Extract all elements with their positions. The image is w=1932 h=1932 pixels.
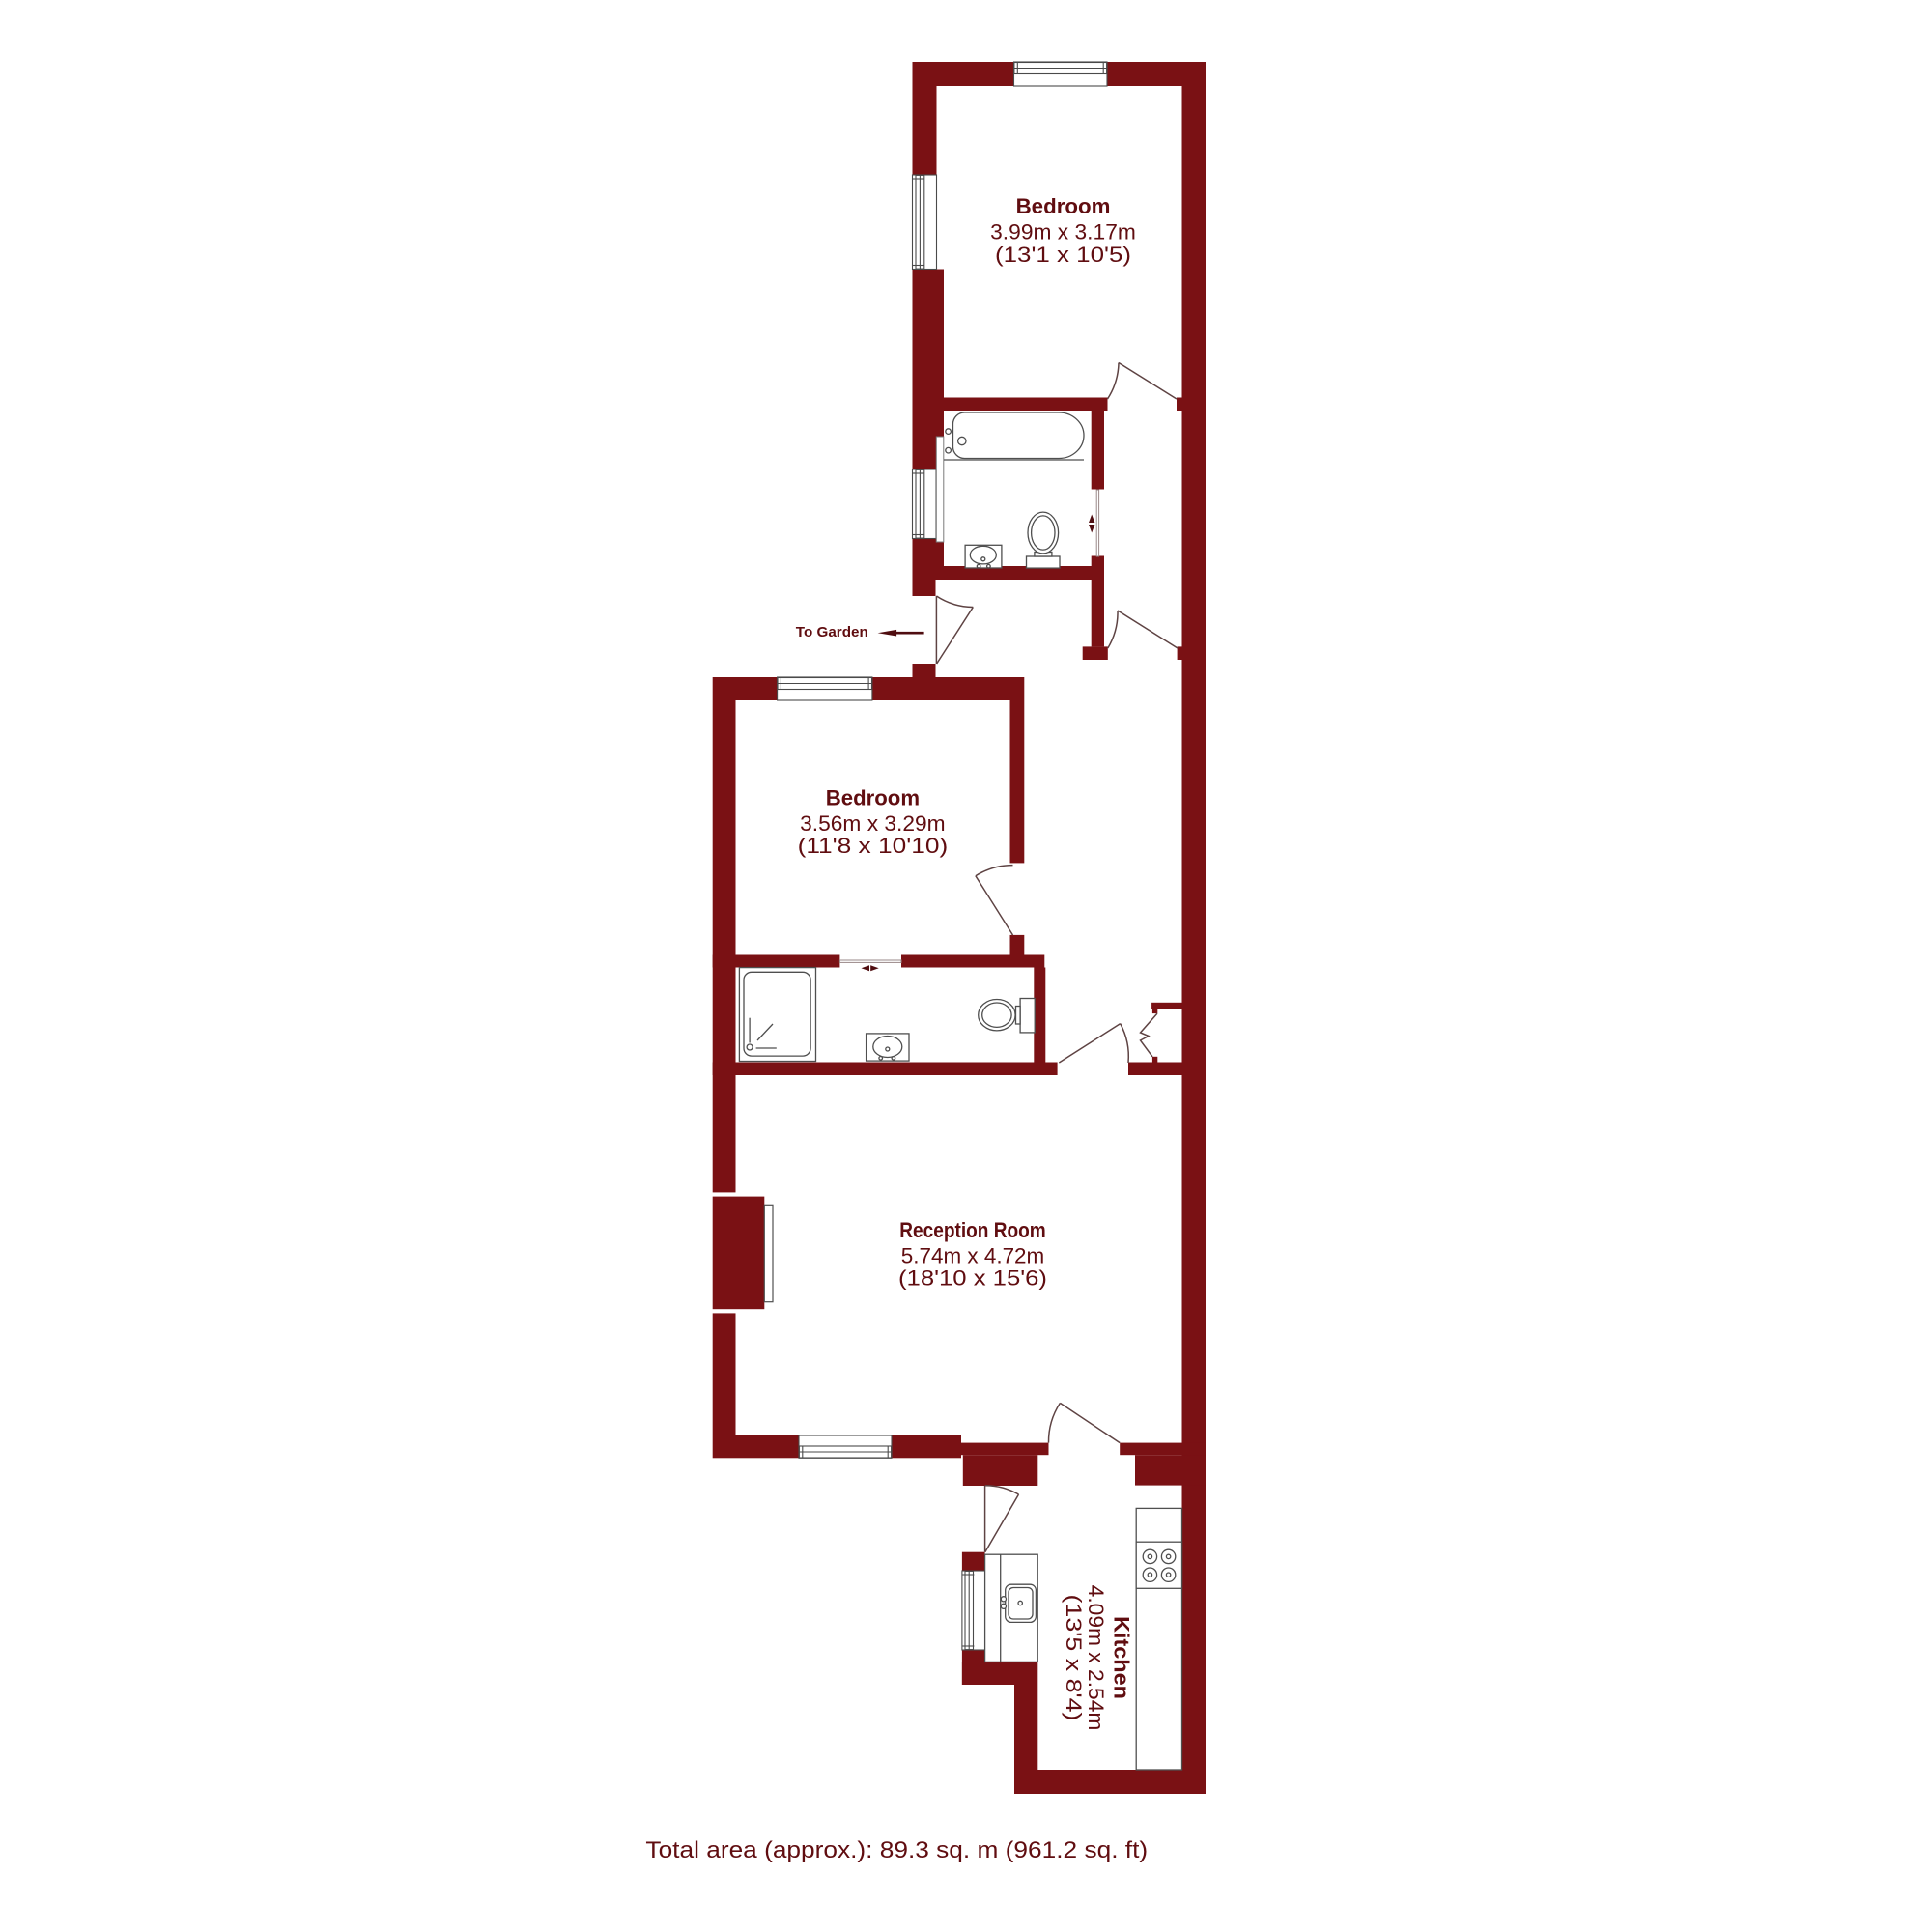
svg-text:Bedroom: Bedroom [1016, 194, 1111, 218]
svg-text:Reception Room: Reception Room [899, 1218, 1046, 1242]
svg-text:(13'5 x 8'4): (13'5 x 8'4) [1062, 1595, 1086, 1721]
svg-text:(11'8 x 10'10): (11'8 x 10'10) [798, 834, 949, 858]
svg-text:Bedroom: Bedroom [826, 786, 920, 810]
svg-text:3.56m x 3.29m: 3.56m x 3.29m [800, 811, 946, 836]
svg-text:(18'10 x 15'6): (18'10 x 15'6) [898, 1266, 1047, 1291]
svg-text:Total area (approx.): 89.3 sq.: Total area (approx.): 89.3 sq. m (961.2 … [645, 1837, 1148, 1863]
svg-text:To Garden: To Garden [796, 624, 868, 640]
svg-text:Kitchen: Kitchen [1110, 1616, 1134, 1699]
svg-text:(13'1 x 10'5): (13'1 x 10'5) [995, 242, 1131, 267]
svg-text:3.99m x 3.17m: 3.99m x 3.17m [990, 220, 1136, 244]
svg-text:4.09m x 2.54m: 4.09m x 2.54m [1084, 1585, 1108, 1731]
svg-text:5.74m x 4.72m: 5.74m x 4.72m [901, 1243, 1045, 1267]
